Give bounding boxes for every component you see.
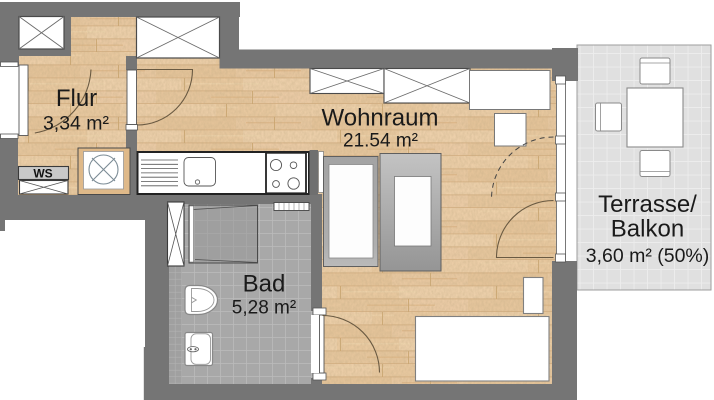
svg-text:21.54 m²: 21.54 m² — [343, 131, 418, 152]
svg-text:Balkon: Balkon — [611, 216, 684, 243]
svg-text:3,60 m² (50%): 3,60 m² (50%) — [586, 245, 710, 267]
svg-text:5,28 m²: 5,28 m² — [232, 298, 296, 319]
svg-text:Flur: Flur — [56, 85, 97, 112]
svg-text:Bad: Bad — [243, 271, 286, 298]
svg-text:3,34 m²: 3,34 m² — [43, 113, 110, 135]
svg-text:WS: WS — [33, 167, 52, 181]
svg-text:Wohnraum: Wohnraum — [322, 104, 439, 131]
svg-text:Terrasse/: Terrasse/ — [598, 191, 697, 218]
